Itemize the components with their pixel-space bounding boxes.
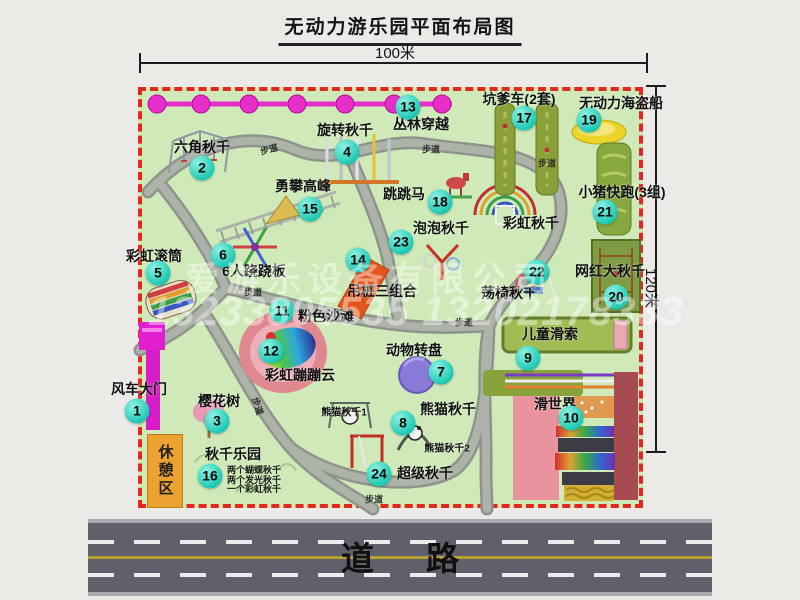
item-badge-16: 16 xyxy=(198,464,223,489)
item-badge-11: 11 xyxy=(270,299,295,324)
item-badge-19: 19 xyxy=(577,108,602,133)
park-map-page: 无动力游乐园平面布局图 100米 120米 xyxy=(0,0,800,600)
walkway-label-5: 步道 xyxy=(365,493,383,506)
item-label-14: 吊桩三组合 xyxy=(347,281,417,301)
dim-right-cap-bottom xyxy=(646,451,666,453)
item-label-1: 风车大门 xyxy=(111,379,167,399)
item-label-24: 超级秋千 xyxy=(397,463,453,483)
item-label-9: 儿童滑索 xyxy=(522,324,578,344)
item-badge-9: 9 xyxy=(516,346,541,371)
area-label-2: 熊猫秋千2 xyxy=(424,440,470,455)
area-label-1: 熊猫秋千1 xyxy=(321,404,367,419)
item-badge-15: 15 xyxy=(298,197,323,222)
area-label-0: 彩虹秋千 xyxy=(503,213,559,233)
item-badge-24: 24 xyxy=(367,462,392,487)
item-badge-21: 21 xyxy=(593,200,618,225)
item-badge-22: 22 xyxy=(525,260,550,285)
item-label-16: 秋千乐园 xyxy=(205,444,261,464)
item-badge-12: 12 xyxy=(259,339,284,364)
walkway-label-2: 步道 xyxy=(538,157,556,170)
item-badge-5: 5 xyxy=(146,261,171,286)
item-badge-7: 7 xyxy=(429,360,454,385)
item-label-2: 六角秋千 xyxy=(174,137,230,157)
item-badge-1: 1 xyxy=(125,399,150,424)
item-label-23: 泡泡秋千 xyxy=(413,218,469,238)
item-label-21: 小猪快跑(3组) xyxy=(578,182,665,202)
item-label-20: 网红大秋千 xyxy=(575,261,645,281)
item-badge-2: 2 xyxy=(190,156,215,181)
item-label-11: 粉色沙滩 xyxy=(298,306,354,326)
road: 道路 xyxy=(88,519,712,596)
road-label: 道路 xyxy=(289,532,511,580)
item-badge-23: 23 xyxy=(389,230,414,255)
road-edge-bottom xyxy=(88,592,712,596)
item-label-8: 熊猫秋千 xyxy=(420,399,476,419)
item-badge-20: 20 xyxy=(604,285,629,310)
item-badge-18: 18 xyxy=(428,190,453,215)
dim-top-cap-left xyxy=(139,53,141,73)
item-badge-3: 3 xyxy=(205,409,230,434)
page-title: 无动力游乐园平面布局图 xyxy=(278,12,521,46)
item-label-4: 旋转秋千 xyxy=(317,120,373,140)
item-badge-17: 17 xyxy=(512,106,537,131)
dim-top-cap-right xyxy=(646,53,648,73)
road-edge-top xyxy=(88,519,712,523)
item-label-22: 荡椅秋千 xyxy=(481,283,537,303)
walkway-label-4: 步道 xyxy=(455,316,473,329)
item-badge-14: 14 xyxy=(346,248,371,273)
item-badge-4: 4 xyxy=(335,140,360,165)
dim-right-cap-top xyxy=(646,85,666,87)
item-notes-16: 两个蝴蝶秋千两个发光秋千一个彩虹秋千 xyxy=(227,466,281,495)
dim-width-label: 100米 xyxy=(375,42,415,63)
rest-area: 休憩区 xyxy=(147,434,183,508)
rest-area-label: 休憩区 xyxy=(155,444,176,498)
item-badge-8: 8 xyxy=(391,411,416,436)
item-badge-13: 13 xyxy=(396,95,421,120)
walkway-label-1: 步道 xyxy=(422,143,440,156)
item-label-18: 跳跳马 xyxy=(383,184,425,204)
item-badge-10: 10 xyxy=(559,406,584,431)
item-label-12: 彩虹蹦蹦云 xyxy=(265,365,335,385)
item-label-7: 动物转盘 xyxy=(386,340,442,360)
walkway-label-3: 步道 xyxy=(244,286,262,299)
item-badge-6: 6 xyxy=(211,243,236,268)
item-label-15: 勇攀高峰 xyxy=(275,176,331,196)
